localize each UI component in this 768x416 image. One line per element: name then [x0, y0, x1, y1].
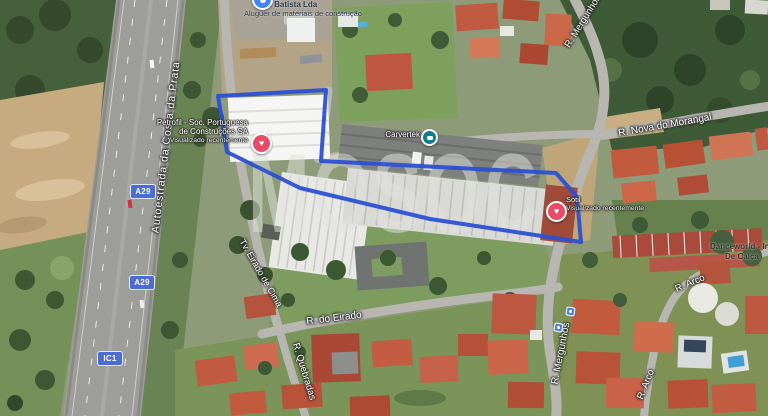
- petrofil-name-line1: Petrofil - Soc. Portuguesa: [128, 118, 248, 127]
- petrofil-subtitle: Visualizado recentemente: [128, 136, 248, 145]
- petrofil-name-line2: de Construções SA: [128, 127, 248, 136]
- shield-a29-north: A29: [130, 184, 156, 199]
- shield-a29-south: A29: [129, 275, 155, 290]
- map-viewport[interactable]: MOSOC Autoestrada da Costa da Prata Tv. …: [0, 0, 768, 416]
- place-label-danceworld-line1[interactable]: Danceworld - In: [710, 242, 768, 251]
- sotil-subtitle: Visualizado recentemente: [566, 204, 644, 213]
- sotil-name: Sotil: [566, 195, 644, 204]
- shop-icon: [260, 0, 266, 3]
- heart-icon: ♥: [259, 139, 264, 148]
- property-boundary-polygon: [218, 90, 581, 242]
- carvertek-poi-pin[interactable]: [421, 129, 438, 146]
- place-label-petrofil[interactable]: Petrofil - Soc. Portuguesa de Construçõe…: [128, 118, 248, 145]
- place-label-sotil[interactable]: Sotil Visualizado recentemente: [566, 195, 644, 213]
- place-label-carvertek[interactable]: Carvertek: [352, 130, 420, 139]
- shield-ic1: IC1: [97, 351, 123, 366]
- car-icon: [427, 136, 433, 140]
- place-label-danceworld-line2: De Calça: [725, 252, 759, 261]
- saved-place-heart-pin-petrofil[interactable]: ♥: [251, 133, 272, 154]
- bus-stop-icon[interactable]: [553, 322, 563, 332]
- bus-stop-icon[interactable]: [565, 306, 575, 316]
- place-label-materials-store-line2: Aluguer de materiais de construção: [244, 9, 362, 18]
- heart-icon: ♥: [554, 207, 559, 216]
- saved-place-heart-pin-sotil[interactable]: ♥: [546, 201, 567, 222]
